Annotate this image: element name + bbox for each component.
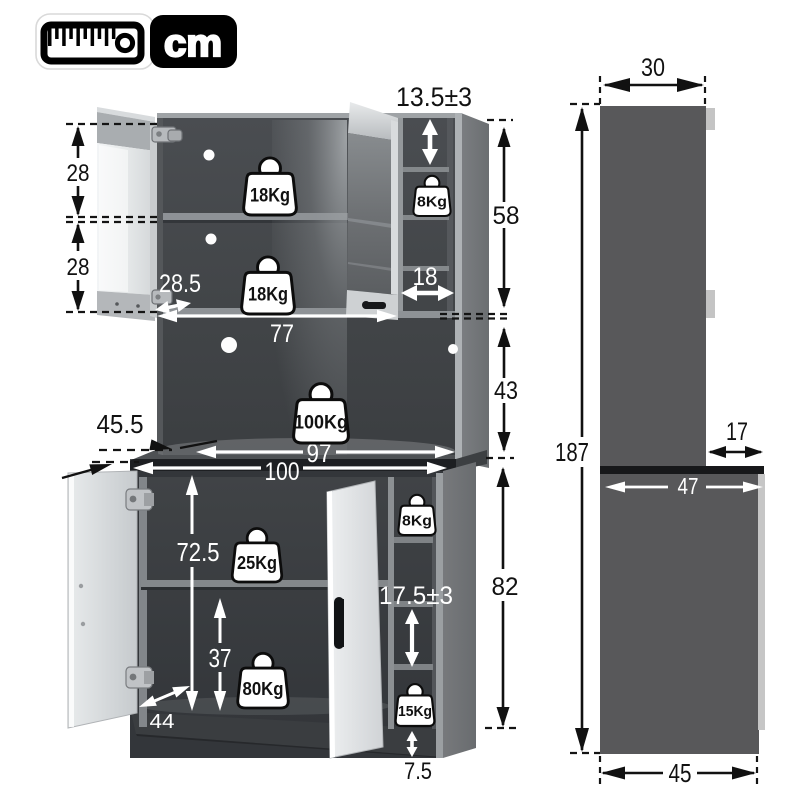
svg-text:cm: cm <box>164 23 222 65</box>
svg-text:18Kg: 18Kg <box>248 284 288 305</box>
svg-text:100Kg: 100Kg <box>294 413 348 434</box>
svg-text:8Kg: 8Kg <box>402 512 432 529</box>
svg-text:80Kg: 80Kg <box>243 679 284 699</box>
svg-text:15Kg: 15Kg <box>398 703 432 720</box>
svg-text:45.5: 45.5 <box>97 411 144 439</box>
svg-text:43: 43 <box>494 377 518 405</box>
svg-text:25Kg: 25Kg <box>237 553 277 573</box>
svg-text:13.5±3: 13.5±3 <box>396 82 472 112</box>
svg-text:8Kg: 8Kg <box>417 193 447 210</box>
svg-text:28: 28 <box>67 254 90 281</box>
svg-text:187: 187 <box>555 439 589 467</box>
svg-text:28.5: 28.5 <box>159 270 201 298</box>
svg-text:77: 77 <box>270 320 294 348</box>
svg-text:18Kg: 18Kg <box>250 185 290 206</box>
svg-text:28: 28 <box>67 160 90 187</box>
svg-text:100: 100 <box>265 458 300 486</box>
svg-text:17.5±3: 17.5±3 <box>379 582 453 610</box>
svg-text:45: 45 <box>669 760 692 788</box>
svg-text:7.5: 7.5 <box>404 758 432 785</box>
svg-text:58: 58 <box>493 202 520 230</box>
svg-text:82: 82 <box>492 573 519 601</box>
svg-text:44: 44 <box>150 711 175 733</box>
svg-text:30: 30 <box>641 54 665 82</box>
svg-text:47: 47 <box>678 473 699 499</box>
svg-text:72.5: 72.5 <box>177 537 220 567</box>
svg-text:37: 37 <box>209 643 232 673</box>
svg-text:17: 17 <box>726 418 748 446</box>
